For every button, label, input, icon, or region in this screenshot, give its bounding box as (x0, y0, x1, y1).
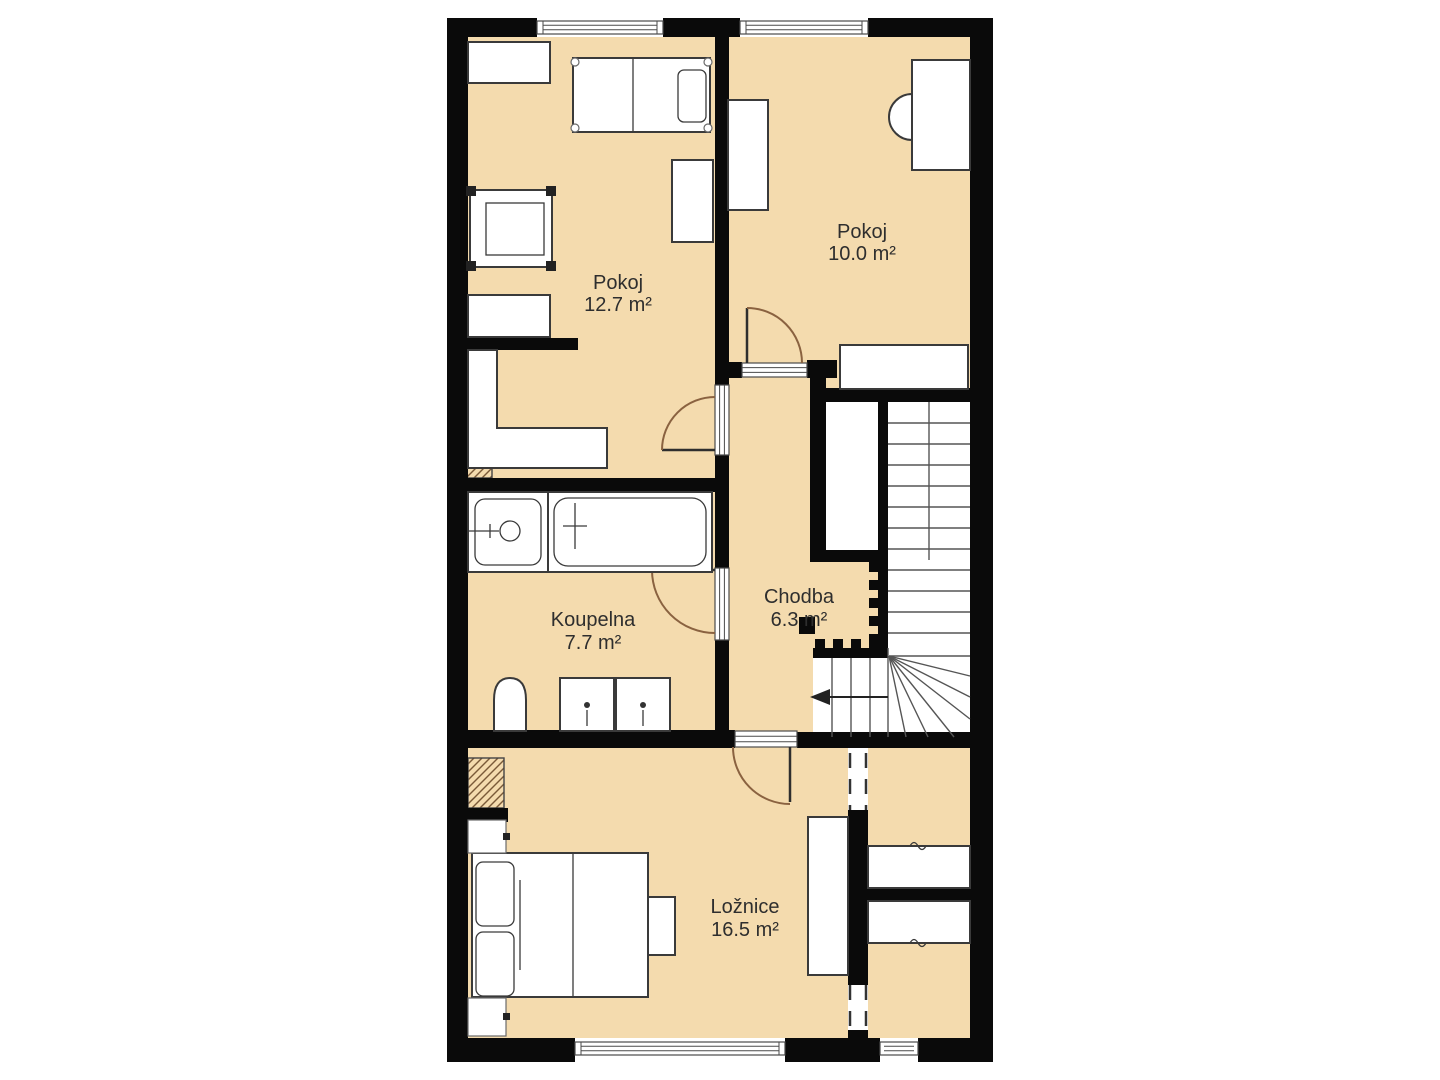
wall-outer-bottom-1 (447, 1038, 575, 1062)
wall-bedroom-top-left (447, 730, 735, 748)
wall-divider-lower (715, 640, 729, 732)
wall-bathroom-top (447, 478, 715, 492)
wall-outer-right (970, 18, 993, 1062)
window-pokoj12 (537, 21, 663, 34)
single-bed (571, 58, 712, 132)
desk (912, 60, 970, 170)
floor-plan: Pokoj 12.7 m² Pokoj 10.0 m² Koupelna 7.7… (0, 0, 1440, 1080)
wall-divider-mid (715, 455, 729, 568)
shower (468, 492, 548, 572)
wall-outer-top-2 (663, 18, 740, 37)
radiator (468, 998, 510, 1036)
shelf (468, 295, 550, 337)
room-label-koupelna-name: Koupelna (551, 609, 636, 631)
wall-outer-top-3 (868, 18, 993, 37)
room-label-chodba-name: Chodba (764, 586, 835, 608)
sink (560, 678, 614, 731)
wall-outer-left (447, 18, 468, 1062)
room-label-chodba-area: 6.3 m² (771, 609, 828, 631)
wardrobe (840, 345, 968, 389)
window-closet-small (880, 1042, 918, 1055)
double-bed (472, 853, 648, 997)
wall-divider-upper (715, 37, 729, 385)
baby-crib (466, 186, 556, 271)
room-label-loznice-name: Ložnice (711, 896, 780, 918)
chimney-block-bedroom (468, 758, 504, 808)
nightstand (648, 897, 675, 955)
wall-stairs-top (826, 388, 970, 402)
wall-bedroom-closet (848, 810, 868, 985)
wardrobe (808, 817, 848, 975)
wall-bedroom-top-right (797, 732, 993, 748)
wall-outer-bottom-3 (918, 1038, 993, 1062)
toilet (494, 678, 526, 731)
wall-pokoj10-bottom-1 (729, 362, 742, 378)
sink (616, 678, 670, 731)
room-label-pokoj12-area: 12.7 m² (584, 294, 652, 316)
wall-bedroom-closet-stub (848, 1030, 868, 1038)
wall-stairs-left (878, 402, 888, 560)
room-label-koupelna-area: 7.7 m² (565, 632, 622, 654)
wall-outer-top-1 (447, 18, 537, 37)
shelf (672, 160, 713, 242)
room-label-pokoj10-area: 10.0 m² (828, 243, 896, 265)
wardrobe (468, 42, 550, 83)
radiator (468, 820, 510, 853)
window-loznice-large (575, 1042, 785, 1055)
window-pokoj10 (740, 21, 868, 34)
closet-shelf (868, 901, 970, 947)
wall-outer-bottom-2 (785, 1038, 880, 1062)
closet-shelf (868, 843, 970, 889)
bathtub (548, 492, 712, 572)
room-label-pokoj10-name: Pokoj (837, 221, 887, 243)
room-label-pokoj12-name: Pokoj (593, 272, 643, 294)
wardrobe (728, 100, 768, 210)
wall-hall-right (810, 375, 826, 562)
wall-closet-divider (868, 888, 970, 901)
wall-stub-pokoj12 (468, 338, 578, 350)
room-label-loznice-area: 16.5 m² (711, 919, 779, 941)
